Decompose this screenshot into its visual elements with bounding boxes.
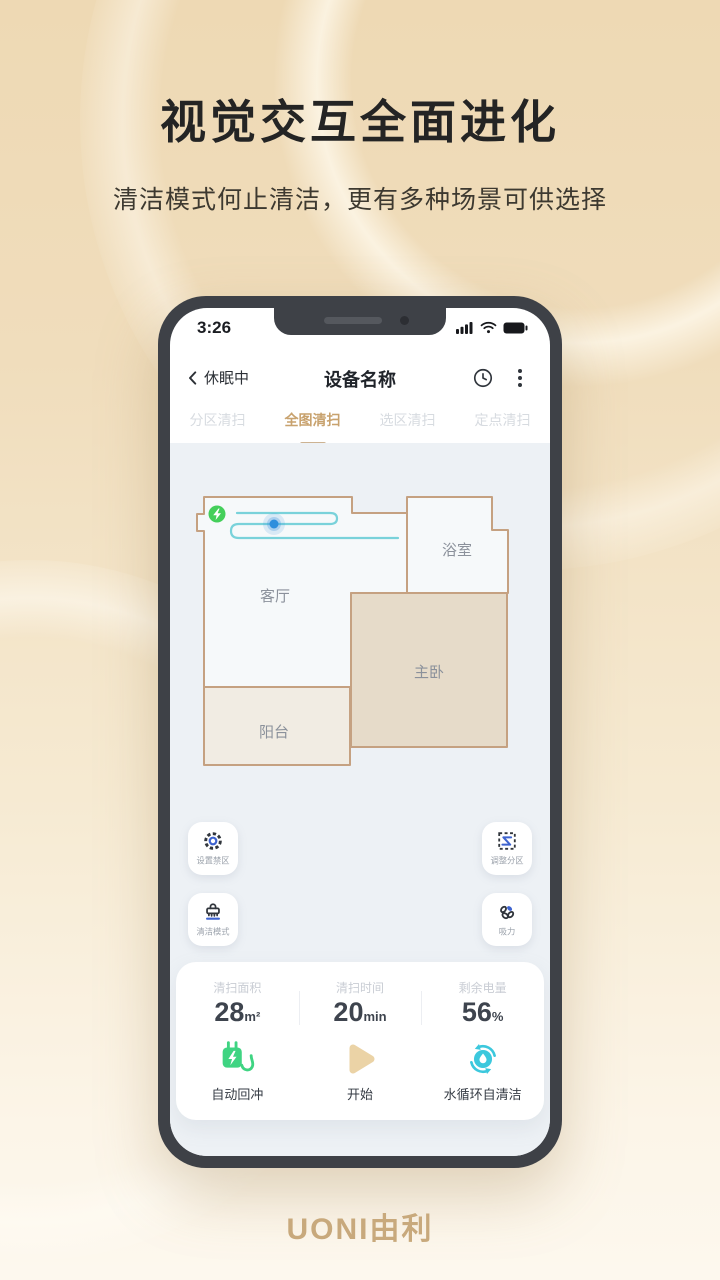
button-label: 清洁模式 (196, 926, 229, 938)
water-selfclean-button[interactable]: 水循环自清洁 (421, 1036, 544, 1103)
play-icon (338, 1037, 382, 1081)
brush-icon (202, 901, 224, 923)
fan-icon (496, 901, 518, 923)
hero-title: 视觉交互全面进化 (0, 86, 720, 152)
speaker-slot (324, 317, 382, 324)
room-label-balcony: 阳台 (259, 724, 289, 741)
battery-icon (503, 322, 528, 334)
stats-row: 清扫面积 28m² 清扫时间 20min 剩余电量 56% (176, 962, 544, 1028)
room-label-living: 客厅 (260, 588, 290, 605)
start-button[interactable]: 开始 (299, 1036, 422, 1103)
hero-subtitle: 清洁模式何止清洁，更有多种场景可供选择 (0, 180, 720, 216)
status-time: 3:26 (197, 318, 231, 338)
tab-fullmap-clean[interactable]: 全图清扫 (265, 406, 360, 443)
gear-icon (202, 830, 224, 852)
dot (518, 383, 522, 387)
clean-mode-button[interactable]: 清洁模式 (188, 893, 238, 946)
suction-button[interactable]: 吸力 (482, 893, 532, 946)
clock-icon (472, 367, 494, 389)
dot (518, 376, 522, 380)
phone-notch (274, 308, 446, 335)
tab-zone-clean[interactable]: 选区清扫 (360, 406, 455, 443)
map-area[interactable]: 客厅 浴室 主卧 阳台 设置禁区 调整分区 (170, 443, 550, 1156)
no-go-zone-button[interactable]: 设置禁区 (188, 822, 238, 875)
button-label: 设置禁区 (196, 855, 229, 867)
clean-mode-tabs: 分区清扫 全图清扫 选区清扫 定点清扫 (170, 406, 550, 443)
signal-icon (456, 322, 474, 334)
partition-icon (496, 830, 518, 852)
button-label: 吸力 (499, 926, 516, 938)
more-menu-button[interactable] (516, 367, 524, 389)
stat-area: 清扫面积 28m² (176, 979, 299, 1028)
phone-screen: 3:26 休眠中 设备名称 (170, 308, 550, 1156)
history-button[interactable] (472, 367, 494, 394)
wifi-icon (480, 321, 497, 334)
nav-bar: 休眠中 设备名称 (170, 360, 550, 398)
camera-dot (400, 316, 409, 325)
phone-mockup: 3:26 休眠中 设备名称 (158, 296, 562, 1168)
actions-row: 自动回冲 开始 (176, 1036, 544, 1103)
brand-logo: UONI由利 (0, 1204, 720, 1248)
room-label-bathroom: 浴室 (442, 542, 472, 559)
water-selfclean-icon (463, 1039, 503, 1079)
bottom-panel: 清扫面积 28m² 清扫时间 20min 剩余电量 56% (176, 962, 544, 1120)
dot (518, 369, 522, 373)
button-label: 调整分区 (490, 855, 523, 867)
room-label-bedroom: 主卧 (414, 664, 444, 681)
tab-spot-clean[interactable]: 定点清扫 (455, 406, 550, 443)
stat-battery: 剩余电量 56% (421, 979, 544, 1028)
floor-map[interactable]: 客厅 浴室 主卧 阳台 (170, 443, 550, 783)
robot-dot[interactable] (270, 520, 279, 529)
stat-duration: 清扫时间 20min (299, 979, 422, 1028)
tab-partition-clean[interactable]: 分区清扫 (170, 406, 265, 443)
recharge-plug-icon (215, 1039, 259, 1079)
status-icons (456, 321, 528, 334)
dock-icon (209, 506, 226, 523)
adjust-partition-button[interactable]: 调整分区 (482, 822, 532, 875)
auto-recharge-button[interactable]: 自动回冲 (176, 1036, 299, 1103)
